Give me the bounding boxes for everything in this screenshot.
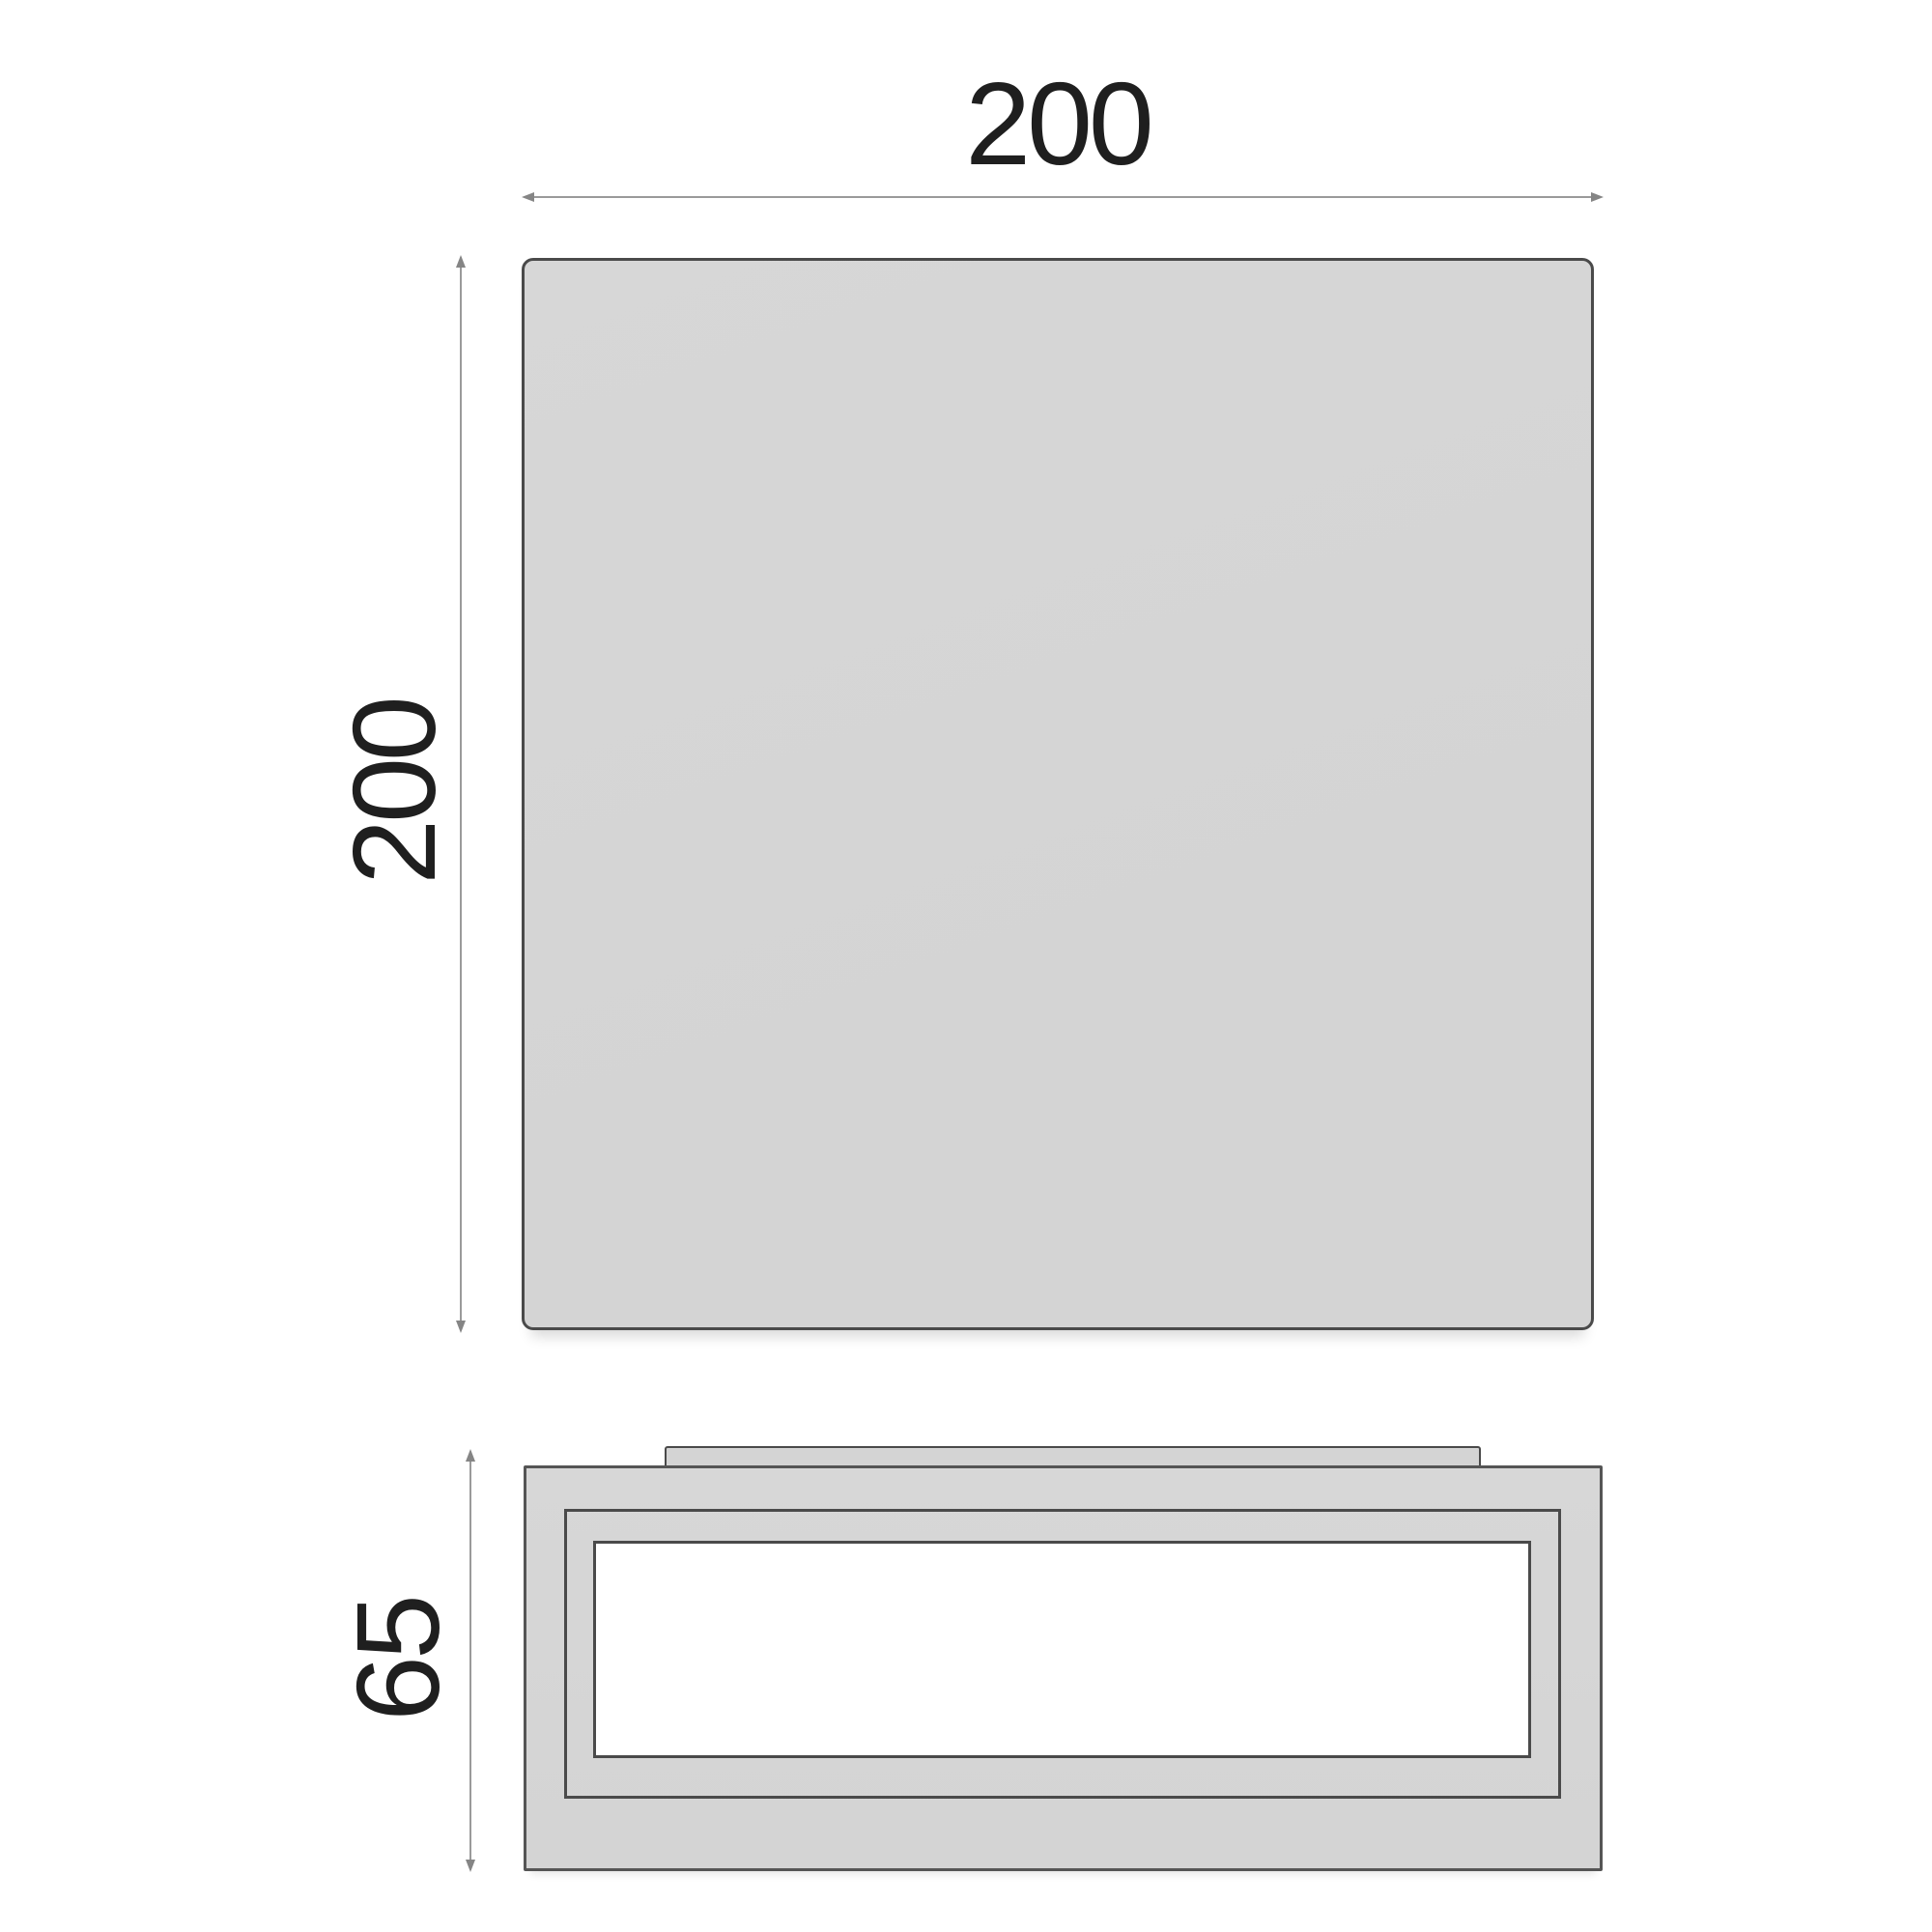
width-dimension-arrow-right-icon bbox=[1591, 192, 1604, 202]
height-dimension-line bbox=[460, 263, 462, 1325]
depth-dimension-arrow-bottom-icon bbox=[466, 1860, 475, 1872]
depth-dimension-arrow-top-icon bbox=[466, 1449, 475, 1462]
height-dimension-arrow-top-icon bbox=[456, 255, 466, 268]
top-view-panel bbox=[522, 258, 1594, 1330]
height-dimension-arrow-bottom-icon bbox=[456, 1321, 466, 1333]
side-view-diffuser-window bbox=[593, 1541, 1531, 1758]
width-dimension-label: 200 bbox=[522, 58, 1594, 189]
height-dimension-label: 200 bbox=[328, 599, 460, 985]
depth-dimension-label: 65 bbox=[332, 1466, 464, 1853]
depth-dimension-line bbox=[469, 1455, 471, 1866]
width-dimension-arrow-left-icon bbox=[522, 192, 534, 202]
width-dimension-line bbox=[533, 196, 1592, 198]
